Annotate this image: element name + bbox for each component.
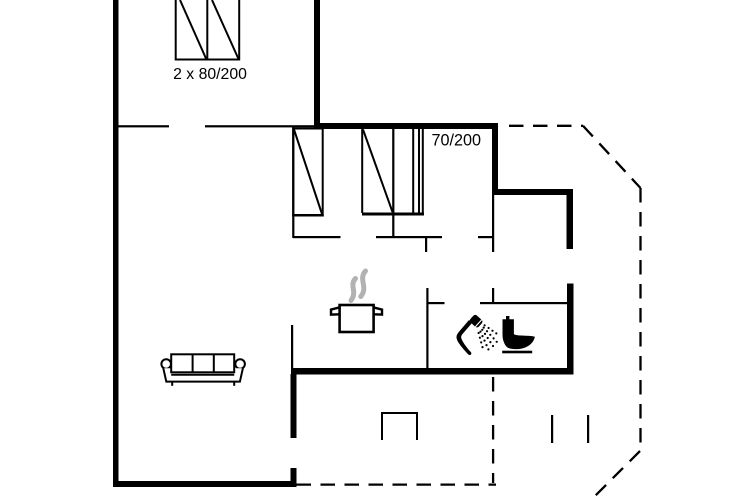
svg-text:2 x 80/200: 2 x 80/200 xyxy=(173,66,247,83)
svg-text:70/200: 70/200 xyxy=(432,132,482,150)
